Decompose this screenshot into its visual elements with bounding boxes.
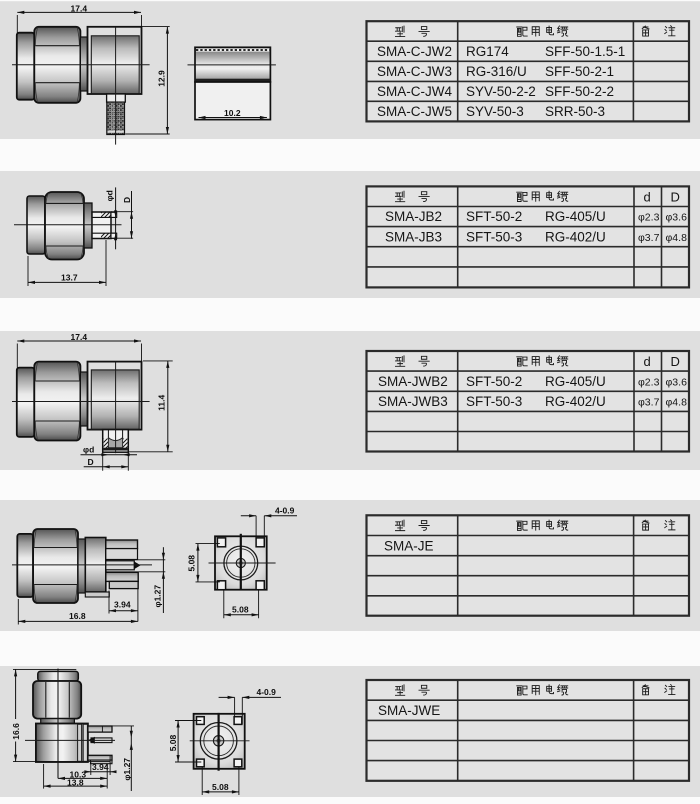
svg-text:SMA-C-JW4: SMA-C-JW4: [377, 84, 452, 99]
svg-text:φ3.7: φ3.7: [638, 232, 660, 244]
svg-text:φ2.3: φ2.3: [638, 212, 660, 224]
svg-text:4-0.9: 4-0.9: [257, 687, 277, 697]
svg-text:D: D: [671, 190, 680, 205]
svg-text:5.08: 5.08: [187, 555, 197, 572]
svg-text:SFT-50-3: SFT-50-3: [466, 394, 522, 409]
svg-text:RG-316/U: RG-316/U: [466, 64, 527, 79]
svg-text:SFT-50-3: SFT-50-3: [466, 229, 522, 244]
svg-text:SMA-JWE: SMA-JWE: [378, 703, 440, 718]
svg-text:D: D: [88, 457, 94, 467]
svg-text:φ1.27: φ1.27: [152, 585, 162, 608]
svg-text:φ4.8: φ4.8: [666, 232, 688, 244]
svg-text:13.7: 13.7: [61, 272, 78, 282]
svg-text:SMA-JWB2: SMA-JWB2: [378, 374, 448, 389]
svg-text:SMA-JE: SMA-JE: [384, 538, 434, 553]
svg-text:10.2: 10.2: [224, 108, 241, 118]
svg-text:17.4: 17.4: [71, 3, 88, 13]
svg-text:φ1.27: φ1.27: [122, 758, 132, 781]
svg-text:3.94: 3.94: [92, 762, 109, 772]
svg-text:RG174: RG174: [466, 44, 509, 59]
svg-text:φ2.3: φ2.3: [638, 376, 660, 388]
svg-text:5.08: 5.08: [168, 734, 178, 751]
svg-text:SYV-50-3: SYV-50-3: [466, 104, 524, 119]
svg-text:SMA-JB2: SMA-JB2: [385, 209, 442, 224]
svg-text:5.08: 5.08: [232, 604, 249, 614]
svg-text:5.08: 5.08: [212, 782, 229, 792]
svg-text:13.8: 13.8: [67, 778, 84, 788]
svg-text:16.8: 16.8: [69, 611, 86, 621]
svg-text:RG-405/U: RG-405/U: [545, 374, 606, 389]
svg-text:φd: φd: [83, 445, 94, 455]
svg-text:11.4: 11.4: [156, 395, 166, 411]
svg-text:SFF-50-1.5-1: SFF-50-1.5-1: [545, 44, 625, 59]
svg-text:3.94: 3.94: [114, 600, 131, 610]
svg-text:SFT-50-2: SFT-50-2: [466, 374, 522, 389]
svg-text:φ4.8: φ4.8: [666, 396, 688, 408]
svg-text:RG-402/U: RG-402/U: [545, 229, 606, 244]
svg-text:SFF-50-2-1: SFF-50-2-1: [545, 64, 614, 79]
svg-text:SMA-C-JW3: SMA-C-JW3: [377, 64, 452, 79]
svg-text:SYV-50-2-2: SYV-50-2-2: [466, 84, 536, 99]
svg-text:SMA-JWB3: SMA-JWB3: [378, 394, 448, 409]
svg-text:17.4: 17.4: [71, 332, 88, 342]
svg-text:SMA-C-JW5: SMA-C-JW5: [377, 104, 452, 119]
svg-text:SMA-C-JW2: SMA-C-JW2: [377, 44, 452, 59]
svg-text:φd: φd: [105, 190, 115, 201]
svg-text:d: d: [644, 354, 651, 369]
svg-text:D: D: [671, 354, 680, 369]
svg-text:4-0.9: 4-0.9: [275, 505, 295, 515]
svg-text:RG-405/U: RG-405/U: [545, 209, 606, 224]
svg-text:RG-402/U: RG-402/U: [545, 394, 606, 409]
svg-text:D: D: [122, 197, 132, 203]
svg-text:16.6: 16.6: [11, 723, 21, 740]
svg-text:SMA-JB3: SMA-JB3: [385, 229, 442, 244]
svg-text:SFT-50-2: SFT-50-2: [466, 209, 522, 224]
svg-text:SRR-50-3: SRR-50-3: [545, 104, 605, 119]
svg-text:φ3.6: φ3.6: [666, 212, 688, 224]
svg-text:d: d: [644, 190, 651, 205]
svg-text:12.9: 12.9: [156, 70, 166, 87]
svg-text:φ3.6: φ3.6: [666, 376, 688, 388]
svg-text:SFF-50-2-2: SFF-50-2-2: [545, 84, 614, 99]
svg-text:φ3.7: φ3.7: [638, 396, 660, 408]
